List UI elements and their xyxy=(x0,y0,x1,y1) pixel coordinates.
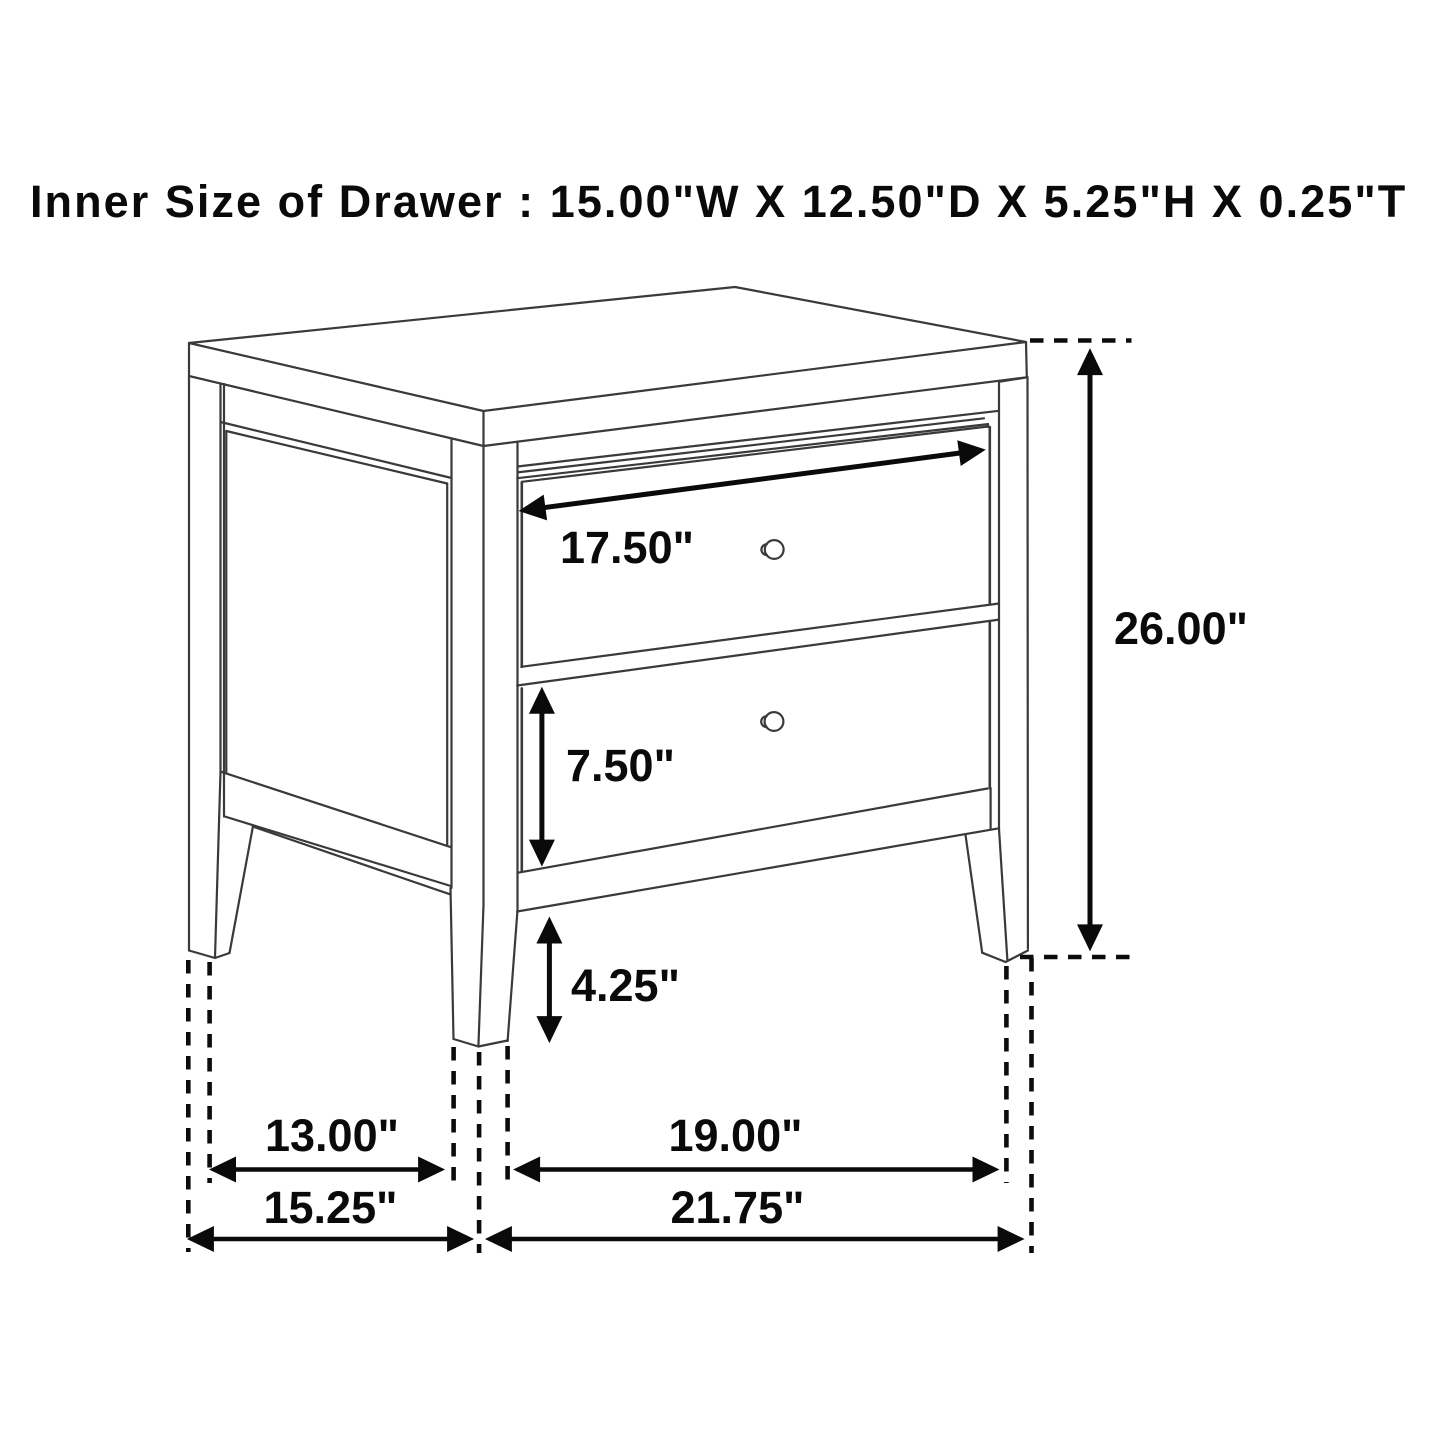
svg-text:15.25": 15.25" xyxy=(264,1182,398,1233)
svg-text:7.50": 7.50" xyxy=(566,740,675,791)
svg-text:17.50": 17.50" xyxy=(560,522,694,573)
svg-text:21.75": 21.75" xyxy=(671,1182,805,1233)
svg-text:13.00": 13.00" xyxy=(265,1110,399,1161)
svg-text:Inner Size of Drawer : 15.00"W: Inner Size of Drawer : 15.00"W X 12.50"D… xyxy=(30,176,1407,227)
svg-text:19.00": 19.00" xyxy=(669,1110,803,1161)
svg-text:26.00": 26.00" xyxy=(1114,603,1248,654)
svg-text:4.25": 4.25" xyxy=(571,960,680,1011)
